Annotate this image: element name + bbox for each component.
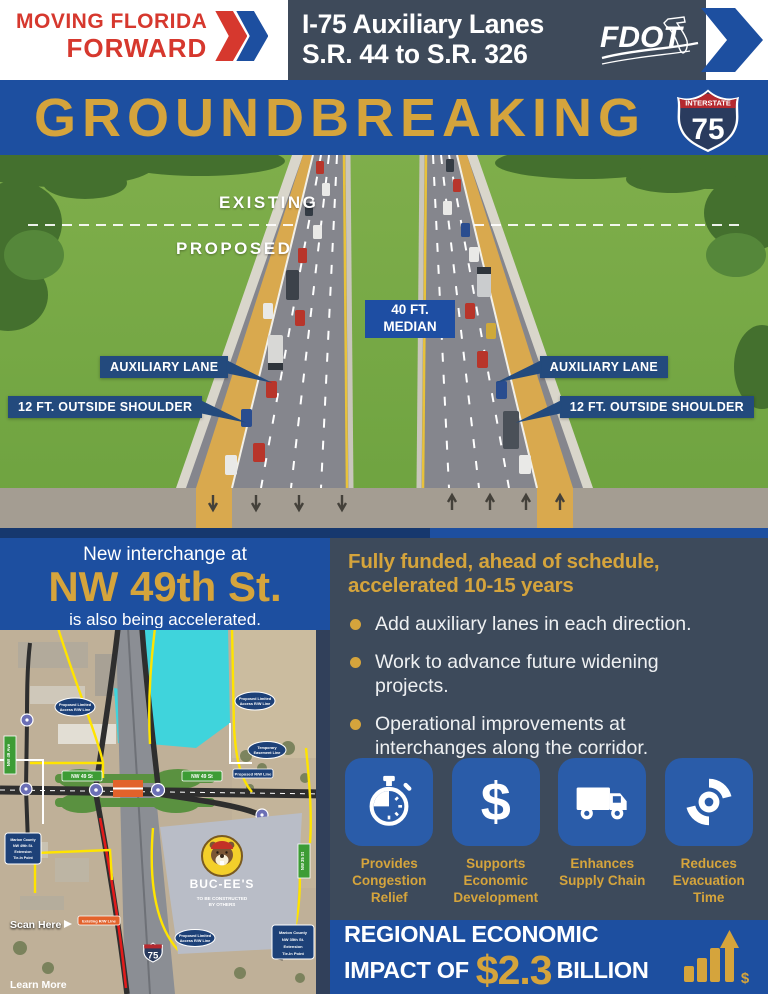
impact-line1: REGIONAL ECONOMIC bbox=[344, 923, 682, 947]
benefit-tile bbox=[665, 758, 753, 846]
bucees-note2: BY OTHERS bbox=[209, 902, 236, 907]
callout-pointer bbox=[496, 360, 542, 384]
shoulder-callout-right: 12 FT. OUTSIDE SHOULDER bbox=[516, 396, 754, 424]
shield-interstate-label: INTERSTATE bbox=[685, 98, 731, 107]
svg-text:NW 49th St.: NW 49th St. bbox=[13, 844, 33, 848]
callout-pointer bbox=[226, 360, 272, 384]
bucees-logo bbox=[202, 836, 242, 876]
impact-text: REGIONAL ECONOMIC IMPACT OF $2.3 BILLION bbox=[344, 923, 682, 991]
bullet-text: Add auxiliary lanes in each direction. bbox=[375, 613, 692, 637]
bullet-item: Add auxiliary lanes in each direction. bbox=[348, 613, 750, 637]
truck-icon bbox=[573, 773, 631, 831]
moving-florida-forward-logo: MOVING FLORIDA FORWARD bbox=[16, 11, 268, 61]
benefit-evacuation: Reduces Evacuation Time bbox=[660, 758, 759, 920]
bullet-icon bbox=[350, 719, 361, 730]
svg-text:Tie-In Point: Tie-In Point bbox=[282, 951, 304, 956]
callout-pointer bbox=[516, 400, 562, 424]
hurricane-icon bbox=[680, 773, 738, 831]
svg-text:Temporary: Temporary bbox=[257, 746, 277, 750]
impact-amount: $2.3 bbox=[476, 950, 552, 991]
impact-prefix: IMPACT OF bbox=[344, 959, 469, 983]
shoulder-callout-left: 12 FT. OUTSIDE SHOULDER bbox=[8, 396, 246, 424]
benefit-label: Enhances Supply Chain bbox=[553, 855, 652, 889]
benefit-label: Supports Economic Development bbox=[447, 855, 546, 906]
svg-text:Marion County: Marion County bbox=[279, 930, 308, 935]
highway-rendering: EXISTING PROPOSED 40 FT. MEDIAN AUXILIAR… bbox=[0, 155, 768, 538]
aerial-map-art: BUC-EE'S TO BE CONSTRUCTED BY OTHERS 75 … bbox=[0, 628, 330, 994]
svg-text:Access R/W Line: Access R/W Line bbox=[60, 708, 91, 712]
map-shield-number: 75 bbox=[148, 950, 159, 961]
interchange-map: BUC-EE'S TO BE CONSTRUCTED BY OTHERS 75 … bbox=[0, 628, 330, 994]
benefits-row: Provides Congestion Relief $ Supports Ec… bbox=[330, 750, 768, 920]
svg-text:Proposed Limited: Proposed Limited bbox=[59, 703, 92, 707]
svg-text:NW 35 St: NW 35 St bbox=[300, 851, 305, 870]
svg-text:Extension: Extension bbox=[14, 850, 31, 854]
brand-text: MOVING FLORIDA FORWARD bbox=[16, 11, 207, 61]
right-column: Fully funded, ahead of schedule, acceler… bbox=[330, 538, 768, 994]
left-column: New interchange at NW 49th St. is also b… bbox=[0, 538, 330, 994]
stopwatch-icon bbox=[360, 773, 418, 831]
scan-here-label: Scan Here bbox=[10, 919, 62, 931]
svg-text:NW 49 Ave: NW 49 Ave bbox=[6, 743, 11, 766]
bullet-icon bbox=[350, 657, 361, 668]
interchange-street: NW 49th St. bbox=[0, 566, 330, 609]
project-title: I-75 Auxiliary Lanes S.R. 44 to S.R. 326 bbox=[288, 10, 598, 69]
svg-text:Easement Line: Easement Line bbox=[254, 751, 281, 755]
callout-label: 12 FT. OUTSIDE SHOULDER bbox=[8, 396, 202, 418]
fdot-logo-text: FDOT bbox=[600, 21, 684, 54]
benefit-supply: Enhances Supply Chain bbox=[553, 758, 652, 920]
impact-suffix: BILLION bbox=[557, 959, 649, 983]
interchange-line2: is also being accelerated. bbox=[0, 610, 330, 630]
svg-text:NW 35th St.: NW 35th St. bbox=[282, 937, 304, 942]
interstate-75-shield: INTERSTATE 75 bbox=[666, 82, 750, 154]
project-title-line2: S.R. 44 to S.R. 326 bbox=[302, 40, 598, 70]
svg-text:Access R/W Line: Access R/W Line bbox=[180, 939, 211, 943]
banner-title: GROUNDBREAKING bbox=[0, 87, 666, 149]
interchange-panel: New interchange at NW 49th St. is also b… bbox=[0, 538, 330, 628]
svg-text:$: $ bbox=[741, 970, 750, 986]
auxiliary-lane-callout-right: AUXILIARY LANE bbox=[496, 356, 668, 384]
callout-label: AUXILIARY LANE bbox=[100, 356, 228, 378]
brand-line1: MOVING FLORIDA bbox=[16, 11, 207, 32]
benefit-label: Reduces Evacuation Time bbox=[660, 855, 759, 906]
auxiliary-lane-callout-left: AUXILIARY LANE bbox=[100, 356, 272, 384]
brand-line2: FORWARD bbox=[16, 35, 207, 61]
double-chevron-icon bbox=[215, 11, 268, 61]
bucees-name: BUC-EE'S bbox=[190, 877, 255, 891]
funding-heading: Fully funded, ahead of schedule, acceler… bbox=[348, 550, 720, 598]
benefit-label: Provides Congestion Relief bbox=[340, 855, 439, 906]
fdot-logo: FDOT bbox=[598, 11, 702, 69]
callout-pointer bbox=[200, 400, 246, 424]
project-title-line1: I-75 Auxiliary Lanes bbox=[302, 10, 598, 40]
svg-text:Access R/W Line: Access R/W Line bbox=[240, 702, 271, 706]
shield-number: 75 bbox=[691, 113, 724, 146]
funding-panel: Fully funded, ahead of schedule, acceler… bbox=[330, 538, 768, 760]
benefit-economic: $ Supports Economic Development bbox=[447, 758, 546, 920]
pond-parcel bbox=[142, 628, 230, 748]
svg-text:Proposed R/W Line: Proposed R/W Line bbox=[235, 771, 272, 776]
existing-label: EXISTING bbox=[219, 193, 318, 213]
bridge-under-construction bbox=[113, 780, 143, 797]
benefit-tile: $ bbox=[452, 758, 540, 846]
learn-more-label: Learn More bbox=[10, 979, 67, 991]
header-arrow-icon bbox=[701, 8, 763, 72]
callout-label: AUXILIARY LANE bbox=[540, 356, 668, 378]
benefit-congestion: Provides Congestion Relief bbox=[340, 758, 439, 920]
bullet-text: Work to advance future widening projects… bbox=[375, 651, 737, 699]
impact-line2: IMPACT OF $2.3 BILLION bbox=[344, 950, 682, 991]
funding-bullets: Add auxiliary lanes in each direction. W… bbox=[348, 613, 750, 760]
callout-label: 12 FT. OUTSIDE SHOULDER bbox=[560, 396, 754, 418]
svg-text:Existing R/W Line: Existing R/W Line bbox=[82, 918, 117, 923]
proposed-label: PROPOSED bbox=[176, 239, 292, 259]
project-title-panel: I-75 Auxiliary Lanes S.R. 44 to S.R. 326… bbox=[288, 0, 706, 80]
bullet-icon bbox=[350, 619, 361, 630]
impact-banner: REGIONAL ECONOMIC IMPACT OF $2.3 BILLION… bbox=[330, 920, 768, 994]
groundbreaking-banner: GROUNDBREAKING INTERSTATE 75 bbox=[0, 80, 768, 155]
benefit-tile bbox=[558, 758, 646, 846]
highway-rendering-art bbox=[0, 155, 768, 538]
header: MOVING FLORIDA FORWARD I-75 Auxiliary La… bbox=[0, 0, 768, 80]
svg-text:NW 49 St: NW 49 St bbox=[71, 774, 93, 780]
svg-text:Proposed Limited: Proposed Limited bbox=[179, 934, 212, 938]
growth-chart-icon: $ bbox=[682, 928, 752, 986]
bucees-note1: TO BE CONSTRUCTED bbox=[197, 896, 248, 901]
svg-text:Proposed Limited: Proposed Limited bbox=[239, 697, 272, 701]
svg-text:Tie-In Point: Tie-In Point bbox=[13, 856, 33, 860]
dollar-icon: $ bbox=[481, 775, 511, 829]
svg-text:NW 49 St: NW 49 St bbox=[191, 774, 213, 780]
median-callout: 40 FT. MEDIAN bbox=[365, 300, 455, 338]
svg-text:Extension: Extension bbox=[283, 944, 303, 949]
cross-road-strip bbox=[0, 488, 768, 528]
bullet-item: Work to advance future widening projects… bbox=[348, 651, 750, 699]
benefit-tile bbox=[345, 758, 433, 846]
infographic-page: MOVING FLORIDA FORWARD I-75 Auxiliary La… bbox=[0, 0, 768, 994]
svg-text:Marion County: Marion County bbox=[10, 838, 35, 842]
